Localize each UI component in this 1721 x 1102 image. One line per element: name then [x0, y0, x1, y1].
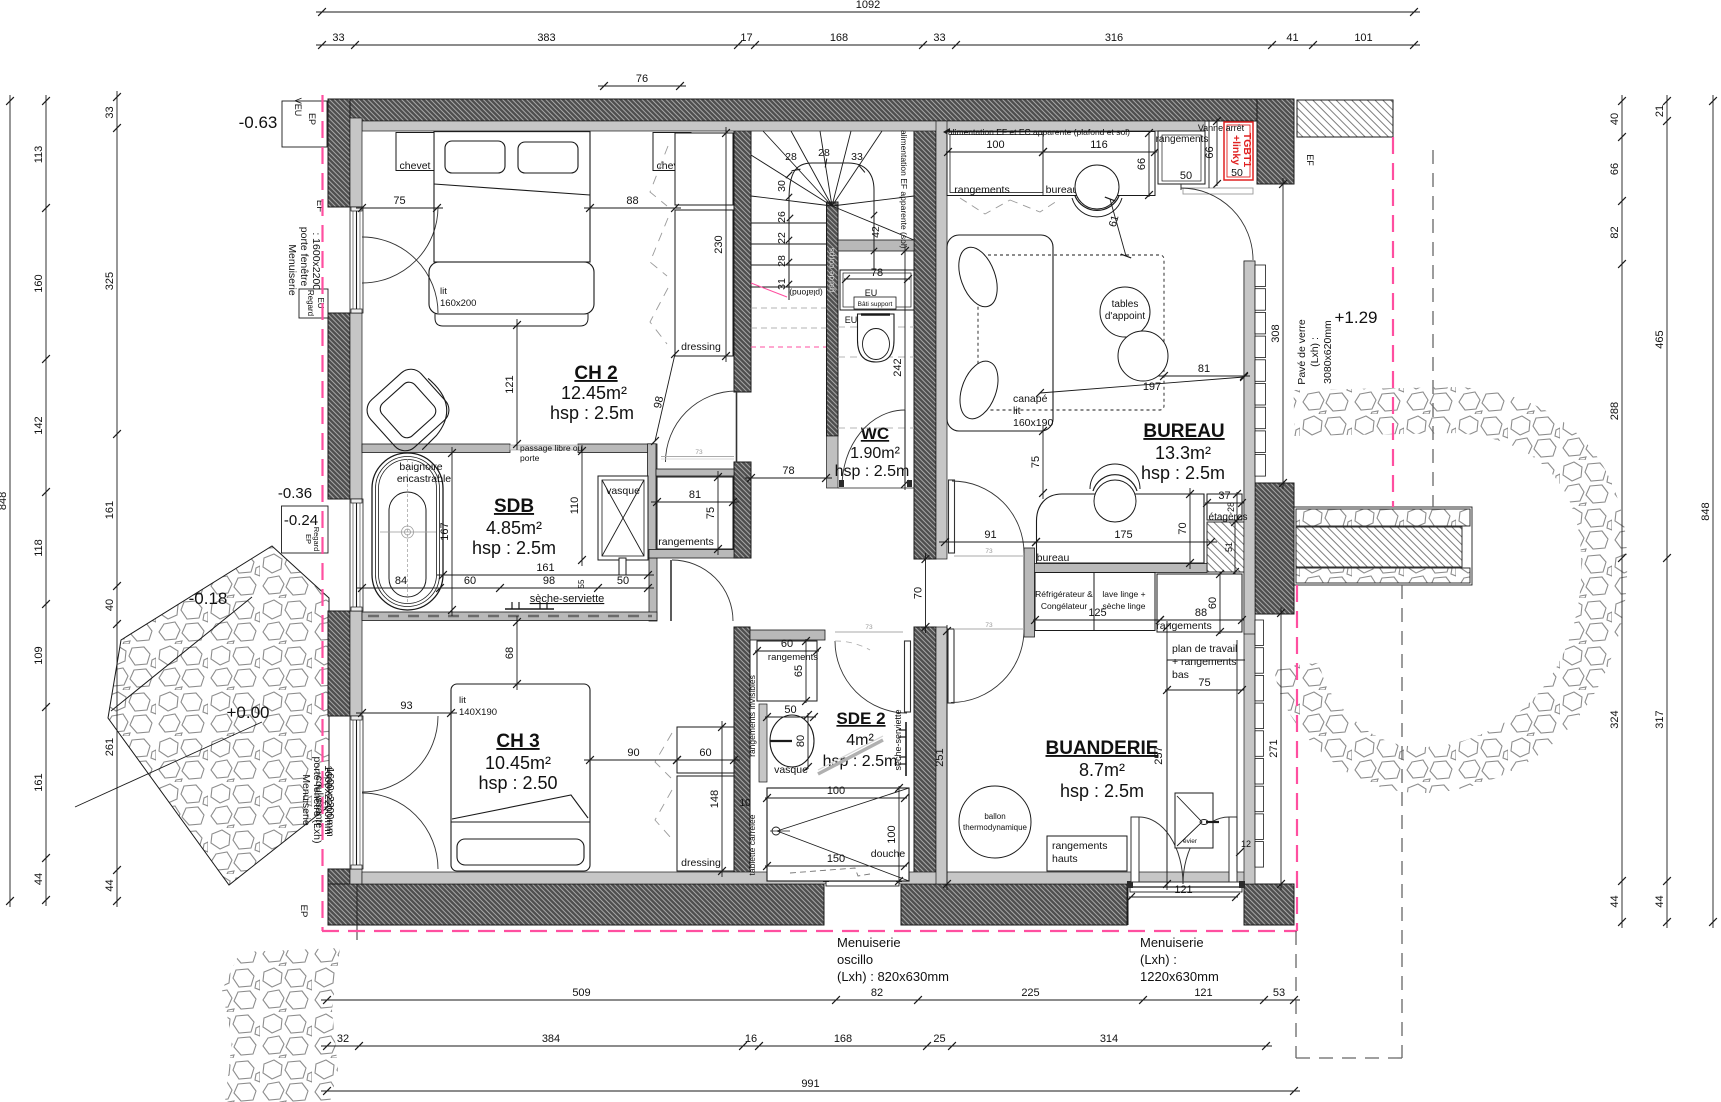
svg-text:1092: 1092	[856, 0, 880, 11]
svg-text:lave linge +: lave linge +	[1102, 589, 1145, 599]
svg-text:Menuiserie: Menuiserie	[300, 774, 312, 826]
svg-text:161: 161	[536, 562, 554, 574]
svg-text:93: 93	[400, 700, 412, 712]
svg-text:+1.29: +1.29	[1334, 308, 1377, 327]
svg-text:91: 91	[984, 529, 996, 541]
svg-text:baignoire: baignoire	[399, 461, 442, 473]
svg-text:Vanne arrêt: Vanne arrêt	[1198, 123, 1245, 133]
svg-text:3080x620mm: 3080x620mm	[1322, 320, 1334, 384]
svg-text:81: 81	[689, 489, 701, 501]
svg-text:EP: EP	[304, 534, 313, 544]
svg-text:288: 288	[1609, 402, 1621, 420]
svg-text:plan de travail: plan de travail	[1172, 643, 1237, 655]
svg-text:EU: EU	[865, 288, 878, 298]
svg-text:VEU: VEU	[293, 98, 303, 117]
svg-text:60: 60	[1207, 597, 1219, 609]
svg-text:44: 44	[1609, 895, 1621, 907]
svg-text:66: 66	[1136, 158, 1148, 170]
svg-text:+ rangements: + rangements	[1172, 656, 1237, 668]
svg-text:vasque: vasque	[606, 485, 640, 497]
svg-text:Réfrigérateur &: Réfrigérateur &	[1035, 589, 1093, 599]
svg-text:225: 225	[1021, 987, 1039, 999]
svg-text:33: 33	[851, 151, 863, 163]
svg-text:canapé: canapé	[1013, 393, 1048, 405]
svg-text:Regard: Regard	[306, 290, 315, 316]
svg-text:33: 33	[104, 106, 116, 118]
svg-text:465: 465	[1654, 330, 1666, 348]
svg-text:991: 991	[801, 1078, 819, 1090]
svg-text:109: 109	[33, 646, 45, 664]
svg-text:rangements: rangements	[1052, 840, 1107, 852]
svg-text:Pavé de verre: Pavé de verre	[1296, 319, 1308, 385]
svg-text:tablette carrelée: tablette carrelée	[747, 814, 757, 875]
svg-text:70: 70	[913, 587, 925, 599]
svg-text:251: 251	[934, 748, 946, 766]
svg-text:160: 160	[33, 274, 45, 292]
svg-text:75: 75	[1030, 456, 1042, 468]
svg-text:73: 73	[985, 548, 993, 555]
svg-text:90: 90	[627, 747, 639, 759]
svg-text:+linky: +linky	[1230, 135, 1242, 165]
svg-text:rangements: rangements	[768, 652, 818, 663]
svg-text:84: 84	[395, 575, 407, 587]
svg-text:-0.36: -0.36	[278, 485, 312, 502]
svg-text:sèche linge: sèche linge	[1102, 601, 1145, 611]
svg-text:324: 324	[1609, 710, 1621, 728]
svg-text:78: 78	[871, 267, 883, 279]
svg-text:175: 175	[1114, 529, 1132, 541]
svg-text:garde corps: garde corps	[826, 248, 836, 293]
svg-text:bureau: bureau	[1037, 552, 1070, 564]
svg-text:160x190: 160x190	[1013, 417, 1053, 429]
svg-text:1220x630mm: 1220x630mm	[1140, 969, 1219, 984]
svg-text:55: 55	[577, 579, 586, 588]
svg-text:142: 142	[33, 416, 45, 434]
svg-text:53: 53	[1273, 987, 1285, 999]
svg-text:116: 116	[1090, 139, 1108, 151]
svg-text:88: 88	[1195, 607, 1207, 619]
svg-text:1.90m²: 1.90m²	[850, 445, 900, 462]
svg-text:12.45m²: 12.45m²	[561, 383, 627, 403]
svg-text:-0.18: -0.18	[189, 589, 228, 608]
svg-text:SDE 2: SDE 2	[836, 709, 885, 728]
svg-text:(Lxh) : 820x630mm: (Lxh) : 820x630mm	[837, 969, 949, 984]
svg-text:44: 44	[1654, 895, 1666, 907]
svg-text:bureau: bureau	[1046, 184, 1079, 196]
svg-text:325: 325	[104, 272, 116, 290]
svg-text:22: 22	[776, 232, 788, 244]
svg-text:848: 848	[0, 492, 9, 510]
svg-text:4.85m²: 4.85m²	[486, 518, 542, 538]
svg-text:(plafond): (plafond)	[789, 288, 823, 298]
svg-text:41: 41	[1286, 32, 1298, 44]
svg-text:317: 317	[1654, 710, 1666, 728]
svg-text:évier: évier	[1183, 838, 1198, 845]
svg-text:68: 68	[504, 647, 516, 659]
svg-text:26: 26	[776, 211, 788, 223]
svg-text:82: 82	[1609, 226, 1621, 238]
svg-text:25: 25	[933, 1033, 945, 1045]
svg-text:CH 2: CH 2	[574, 363, 617, 384]
svg-text:42: 42	[870, 226, 882, 238]
svg-text:d'appoint: d'appoint	[1105, 311, 1146, 322]
svg-text:BUREAU: BUREAU	[1143, 421, 1224, 442]
svg-text:hauts: hauts	[1052, 853, 1078, 865]
svg-text:316: 316	[1105, 32, 1123, 44]
svg-text:28: 28	[776, 255, 788, 267]
svg-text:13.3m²: 13.3m²	[1155, 443, 1211, 463]
svg-text:168: 168	[834, 1033, 852, 1045]
svg-text:8.7m²: 8.7m²	[1079, 760, 1125, 780]
svg-text:44: 44	[104, 879, 116, 891]
svg-text:384: 384	[542, 1033, 560, 1045]
svg-text:50: 50	[784, 704, 796, 716]
svg-text:17: 17	[740, 32, 752, 44]
svg-text:80: 80	[795, 735, 807, 747]
svg-text:76: 76	[636, 73, 648, 85]
svg-text:1600x2200mm: 1600x2200mm	[324, 767, 336, 837]
svg-text:lit: lit	[1013, 405, 1021, 417]
svg-text:sèche-serviette: sèche-serviette	[530, 593, 605, 605]
svg-text:rangements: rangements	[658, 536, 713, 548]
svg-text:BUANDERIE: BUANDERIE	[1046, 738, 1159, 759]
svg-text:vasque: vasque	[774, 764, 808, 776]
svg-text:98: 98	[543, 575, 555, 587]
svg-text:78: 78	[782, 465, 794, 477]
svg-text:66: 66	[1204, 146, 1216, 158]
svg-text:chevet: chevet	[400, 160, 431, 172]
svg-text:100: 100	[886, 825, 898, 843]
svg-text:848: 848	[1700, 502, 1712, 520]
svg-text:121: 121	[1174, 884, 1192, 896]
svg-text:30: 30	[776, 180, 788, 192]
svg-text:121: 121	[1194, 987, 1212, 999]
svg-text:EF: EF	[1305, 154, 1315, 166]
svg-text:12: 12	[1241, 839, 1251, 849]
svg-text:118: 118	[33, 539, 45, 557]
svg-text:110: 110	[569, 497, 581, 515]
svg-text:257: 257	[1153, 746, 1165, 764]
svg-text:75: 75	[1198, 677, 1210, 689]
svg-text:161: 161	[104, 501, 116, 519]
svg-text:ballon: ballon	[984, 812, 1005, 821]
svg-text:75: 75	[393, 195, 405, 207]
svg-text:101: 101	[1354, 32, 1372, 44]
svg-text:Congélateur: Congélateur	[1041, 601, 1087, 611]
svg-text:60: 60	[699, 747, 711, 759]
svg-text:308: 308	[1270, 324, 1282, 342]
svg-text:88: 88	[626, 195, 638, 207]
svg-text:-0.63: -0.63	[239, 113, 278, 132]
svg-text:50: 50	[1231, 167, 1243, 179]
svg-text:261: 261	[104, 738, 116, 756]
svg-text:bas: bas	[1172, 669, 1189, 681]
svg-text:70: 70	[1177, 522, 1189, 534]
svg-text:60: 60	[464, 575, 476, 587]
svg-text:lit: lit	[459, 695, 466, 706]
svg-text:81: 81	[1198, 363, 1210, 375]
svg-text:douche: douche	[871, 848, 906, 860]
svg-text:EU: EU	[845, 315, 858, 325]
svg-text:10: 10	[739, 798, 751, 809]
svg-text:40: 40	[1609, 113, 1621, 125]
svg-text:383: 383	[537, 32, 555, 44]
svg-text:50: 50	[617, 575, 629, 587]
svg-text:lit: lit	[440, 286, 447, 297]
svg-text:rangements: rangements	[1156, 134, 1209, 145]
svg-text:125: 125	[1088, 607, 1106, 619]
svg-text:EU: EU	[316, 297, 325, 308]
svg-text:66: 66	[1609, 163, 1621, 175]
svg-text:SDB: SDB	[494, 496, 534, 517]
svg-text:31: 31	[776, 278, 788, 290]
svg-text:tables: tables	[1112, 299, 1139, 310]
svg-text:33: 33	[332, 32, 344, 44]
svg-text:étagères: étagères	[1209, 512, 1248, 523]
svg-text:168: 168	[830, 32, 848, 44]
svg-text:EP: EP	[298, 905, 309, 918]
svg-text:thermodynamique: thermodynamique	[963, 823, 1028, 832]
svg-text:44: 44	[33, 873, 45, 885]
svg-text:hsp : 2.5m: hsp : 2.5m	[835, 463, 910, 480]
svg-text:73: 73	[985, 622, 993, 629]
svg-text:rangements: rangements	[954, 184, 1009, 196]
svg-text:hsp : 2.5m: hsp : 2.5m	[1060, 781, 1144, 801]
svg-text:113: 113	[33, 146, 45, 164]
svg-text:porte: porte	[520, 453, 540, 463]
svg-text:230: 230	[713, 235, 725, 253]
svg-text:CH 3: CH 3	[496, 731, 539, 752]
svg-text:271: 271	[1268, 739, 1280, 757]
svg-text:hsp : 2.5m: hsp : 2.5m	[1141, 463, 1225, 483]
svg-text:dressing: dressing	[681, 341, 721, 353]
svg-text:28: 28	[1226, 502, 1236, 512]
svg-text:hsp : 2.5m: hsp : 2.5m	[472, 538, 556, 558]
svg-text:73: 73	[695, 449, 703, 456]
svg-text:oscillo: oscillo	[837, 952, 873, 967]
svg-text:+0.00: +0.00	[226, 703, 269, 722]
svg-text:37: 37	[1218, 490, 1230, 502]
svg-text:51: 51	[1224, 542, 1234, 552]
svg-text:509: 509	[572, 987, 590, 999]
svg-text:hsp : 2.50: hsp : 2.50	[478, 773, 557, 793]
svg-text:21: 21	[1654, 105, 1666, 117]
svg-text:197: 197	[1143, 381, 1161, 393]
svg-text:100: 100	[986, 139, 1004, 151]
svg-text:sèche-serviette: sèche-serviette	[893, 709, 903, 770]
svg-text:Menuiserie: Menuiserie	[1140, 935, 1204, 950]
svg-text:60: 60	[781, 638, 793, 650]
svg-text:73: 73	[865, 624, 873, 631]
svg-text:hsp : 2.5m: hsp : 2.5m	[550, 403, 634, 423]
svg-text:EP: EP	[307, 113, 317, 125]
svg-text:(Lxh) :: (Lxh) :	[1309, 337, 1321, 367]
svg-text:Bâti support: Bâti support	[858, 301, 893, 308]
svg-text:242: 242	[892, 358, 904, 376]
svg-text:passage libre ou: passage libre ou	[520, 443, 583, 453]
svg-text:alimentation EF apparente (sol: alimentation EF apparente (sol)	[899, 130, 909, 249]
svg-text:33: 33	[933, 32, 945, 44]
svg-text:148: 148	[709, 790, 721, 808]
svg-text:32: 32	[337, 1033, 349, 1045]
svg-text:rangements invisibles: rangements invisibles	[747, 675, 757, 757]
svg-text:121: 121	[504, 375, 516, 393]
svg-text:75: 75	[705, 507, 717, 519]
svg-text:65: 65	[793, 665, 805, 677]
svg-text:140X190: 140X190	[459, 707, 497, 718]
svg-text:dressing: dressing	[681, 857, 721, 869]
svg-text:100: 100	[827, 785, 845, 797]
svg-text:10.45m²: 10.45m²	[485, 753, 551, 773]
svg-text:167: 167	[439, 522, 451, 540]
svg-text:82: 82	[871, 987, 883, 999]
svg-text:Menuiserie: Menuiserie	[286, 244, 298, 296]
svg-text:28: 28	[818, 147, 830, 159]
svg-text:98: 98	[652, 395, 666, 409]
svg-text:Menuiserie: Menuiserie	[837, 935, 901, 950]
svg-text:40: 40	[104, 599, 116, 611]
svg-text:50: 50	[1180, 170, 1192, 182]
svg-text:314: 314	[1100, 1033, 1118, 1045]
svg-text:16: 16	[745, 1033, 757, 1045]
svg-text:150: 150	[827, 853, 845, 865]
svg-text:encastrable: encastrable	[397, 473, 451, 485]
svg-text:(Lxh) :: (Lxh) :	[1140, 952, 1177, 967]
svg-text:160x200: 160x200	[440, 298, 476, 309]
svg-text:161: 161	[33, 773, 45, 791]
svg-text:28: 28	[785, 151, 797, 163]
